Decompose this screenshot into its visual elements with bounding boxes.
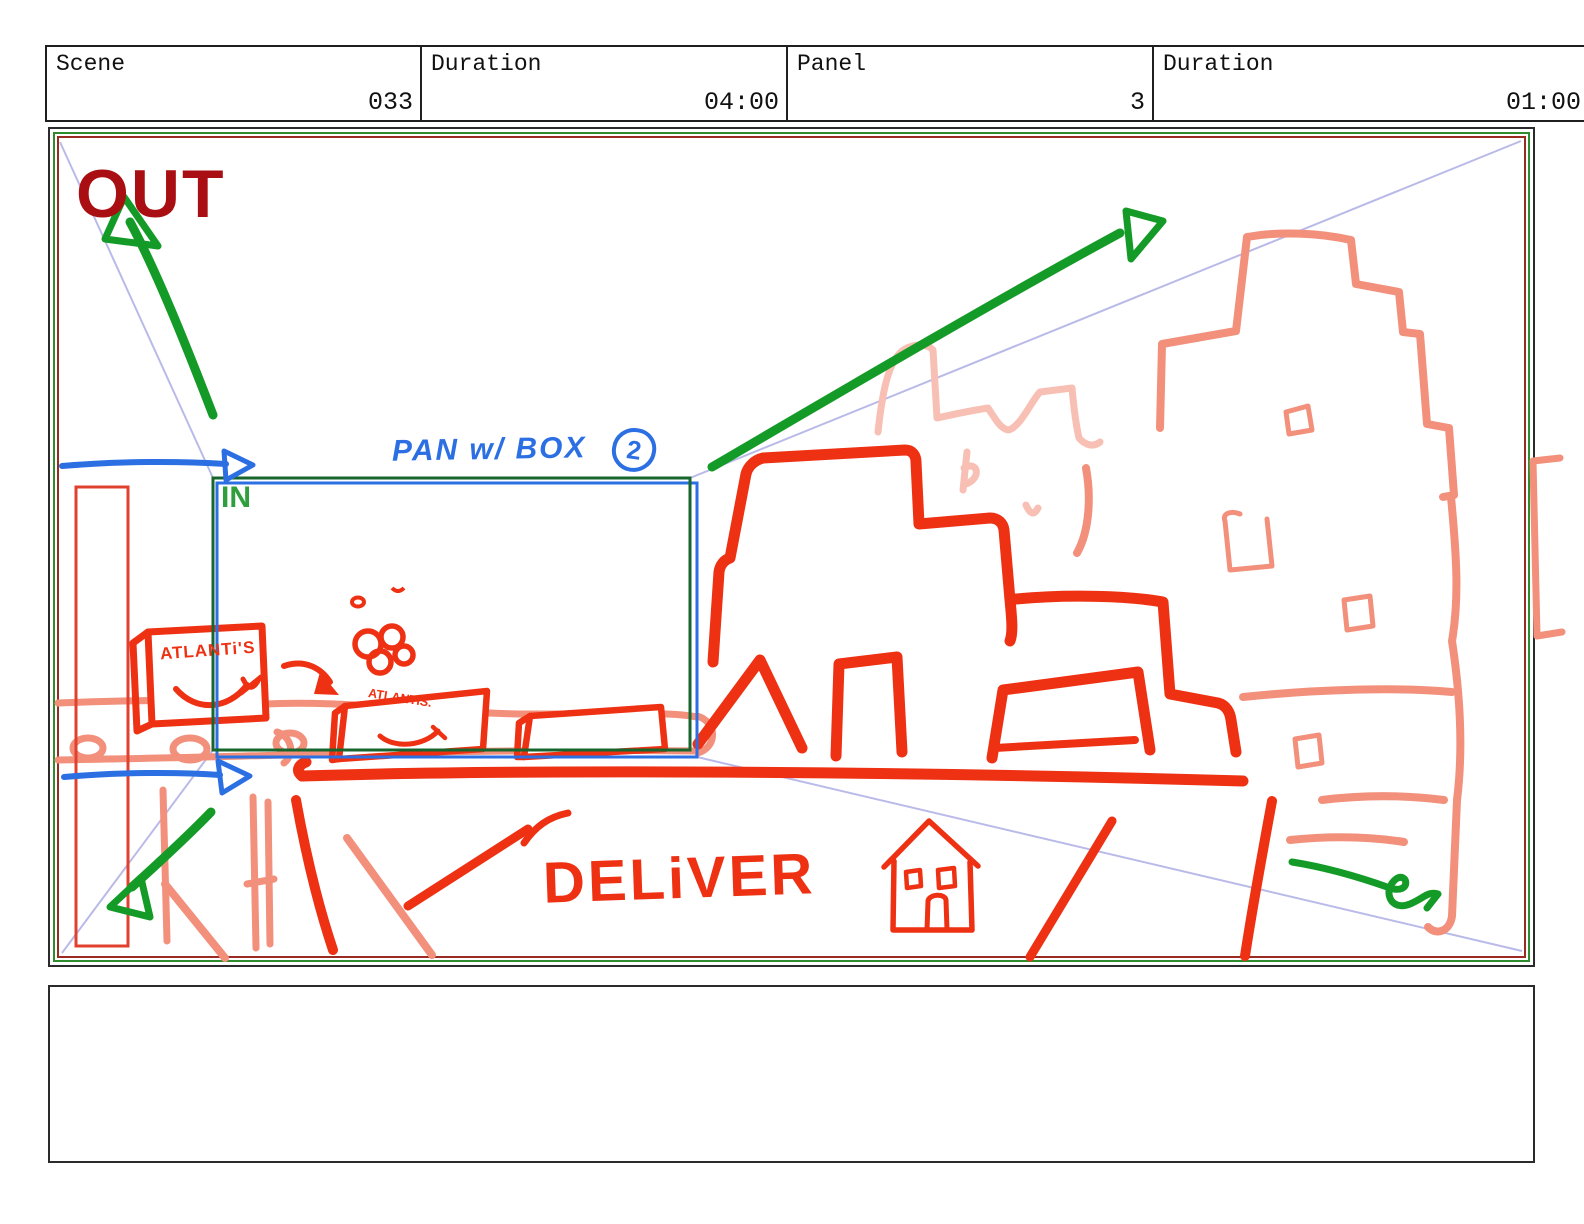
panel-duration-label: Duration (1163, 51, 1273, 77)
storyboard-page: Scene 033 Duration 04:00 Panel 3 Duratio… (0, 0, 1584, 1224)
deliver-label: DELiVER (542, 840, 817, 916)
scene-value: 033 (368, 88, 413, 117)
pan-note-number: 2 (625, 434, 644, 467)
panel-number-label: Panel (797, 51, 866, 77)
panel-duration-value: 01:00 (1506, 88, 1581, 117)
in-label: IN (221, 481, 251, 515)
scene-cell: Scene 033 (47, 47, 422, 120)
scene-label: Scene (56, 51, 125, 77)
header-table: Scene 033 Duration 04:00 Panel 3 Duratio… (45, 45, 1584, 122)
out-label: OUT (76, 155, 226, 233)
panel-duration-cell: Duration 01:00 (1154, 47, 1584, 120)
panel-number-value: 3 (1130, 88, 1145, 117)
notes-box (48, 985, 1535, 1163)
scene-duration-label: Duration (431, 51, 541, 77)
scene-duration-cell: Duration 04:00 (422, 47, 788, 120)
pan-note: PAN w/ BOX (392, 431, 587, 468)
scene-duration-value: 04:00 (704, 88, 779, 117)
storyboard-panel-frame-maroon (57, 136, 1526, 958)
panel-number-cell: Panel 3 (788, 47, 1154, 120)
